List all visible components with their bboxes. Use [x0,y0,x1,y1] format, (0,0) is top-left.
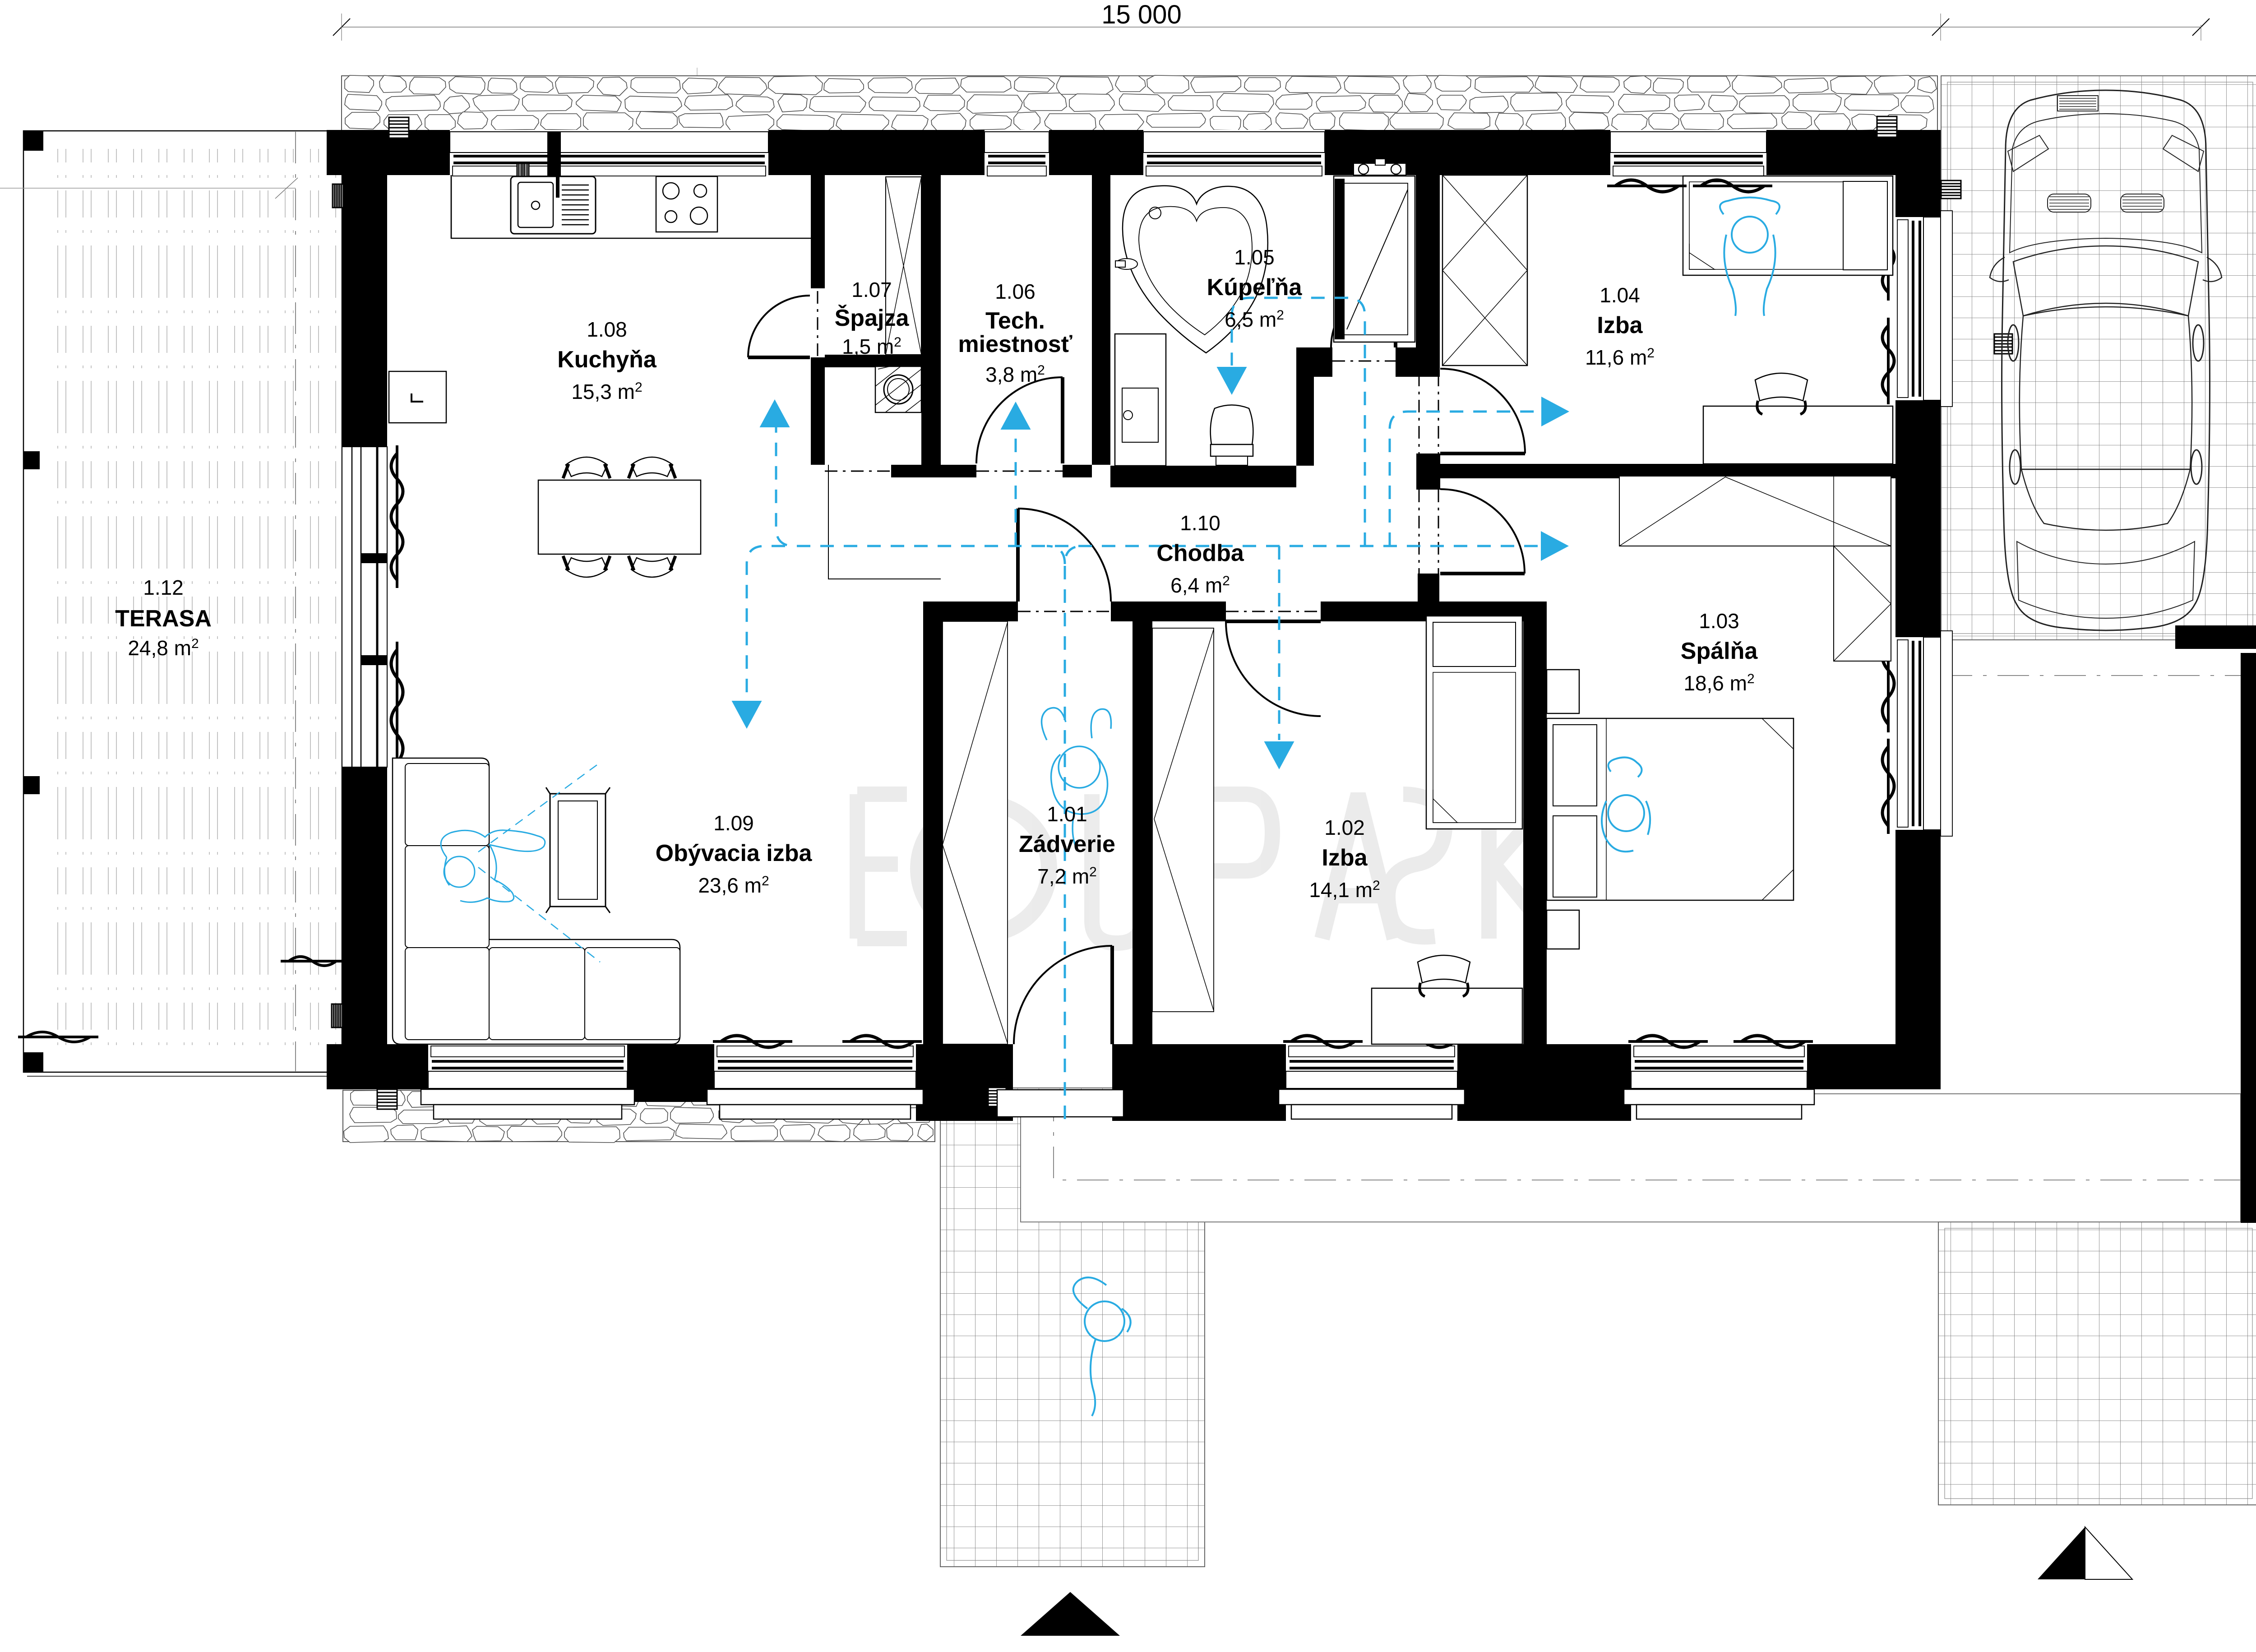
svg-text:15 000: 15 000 [1101,0,1181,29]
svg-text:11,6 m2: 11,6 m2 [1585,346,1655,370]
svg-text:1.06: 1.06 [995,280,1036,303]
svg-text:1.01: 1.01 [1047,802,1087,826]
svg-text:6,5 m2: 6,5 m2 [1225,308,1284,332]
svg-text:24,8 m2: 24,8 m2 [128,636,199,660]
svg-text:1,5 m2: 1,5 m2 [842,335,901,359]
svg-text:Špajza: Špajza [835,305,910,331]
svg-text:23,6 m2: 23,6 m2 [698,874,769,898]
svg-text:Spálňa: Spálňa [1681,638,1758,664]
svg-text:Izba: Izba [1597,312,1643,338]
svg-text:1.02: 1.02 [1324,816,1365,839]
svg-text:TERASA: TERASA [115,606,212,632]
svg-text:Tech.: Tech. [985,308,1045,334]
svg-text:15,3 m2: 15,3 m2 [571,380,642,404]
svg-text:1.03: 1.03 [1699,609,1739,633]
svg-text:3,8 m2: 3,8 m2 [985,363,1045,387]
svg-text:Chodba: Chodba [1156,540,1244,566]
svg-text:1.09: 1.09 [713,811,754,835]
svg-text:miestnosť: miestnosť [958,331,1072,357]
svg-text:Obývacia izba: Obývacia izba [656,840,813,866]
svg-text:1.10: 1.10 [1180,511,1220,535]
svg-text:7,2 m2: 7,2 m2 [1037,865,1097,888]
svg-text:1.12: 1.12 [143,576,184,599]
svg-text:Zádverie: Zádverie [1019,831,1115,857]
svg-text:14,1 m2: 14,1 m2 [1309,878,1380,902]
svg-text:1.04: 1.04 [1600,283,1640,307]
svg-text:Kuchyňa: Kuchyňa [557,347,657,373]
svg-text:1.07: 1.07 [851,278,892,301]
svg-text:1.05: 1.05 [1234,245,1275,269]
svg-text:1.08: 1.08 [587,318,627,341]
svg-text:6,4 m2: 6,4 m2 [1170,574,1230,597]
svg-text:Izba: Izba [1322,845,1368,871]
svg-text:Kúpeľňa: Kúpeľňa [1207,274,1303,301]
svg-text:18,6 m2: 18,6 m2 [1683,671,1754,695]
